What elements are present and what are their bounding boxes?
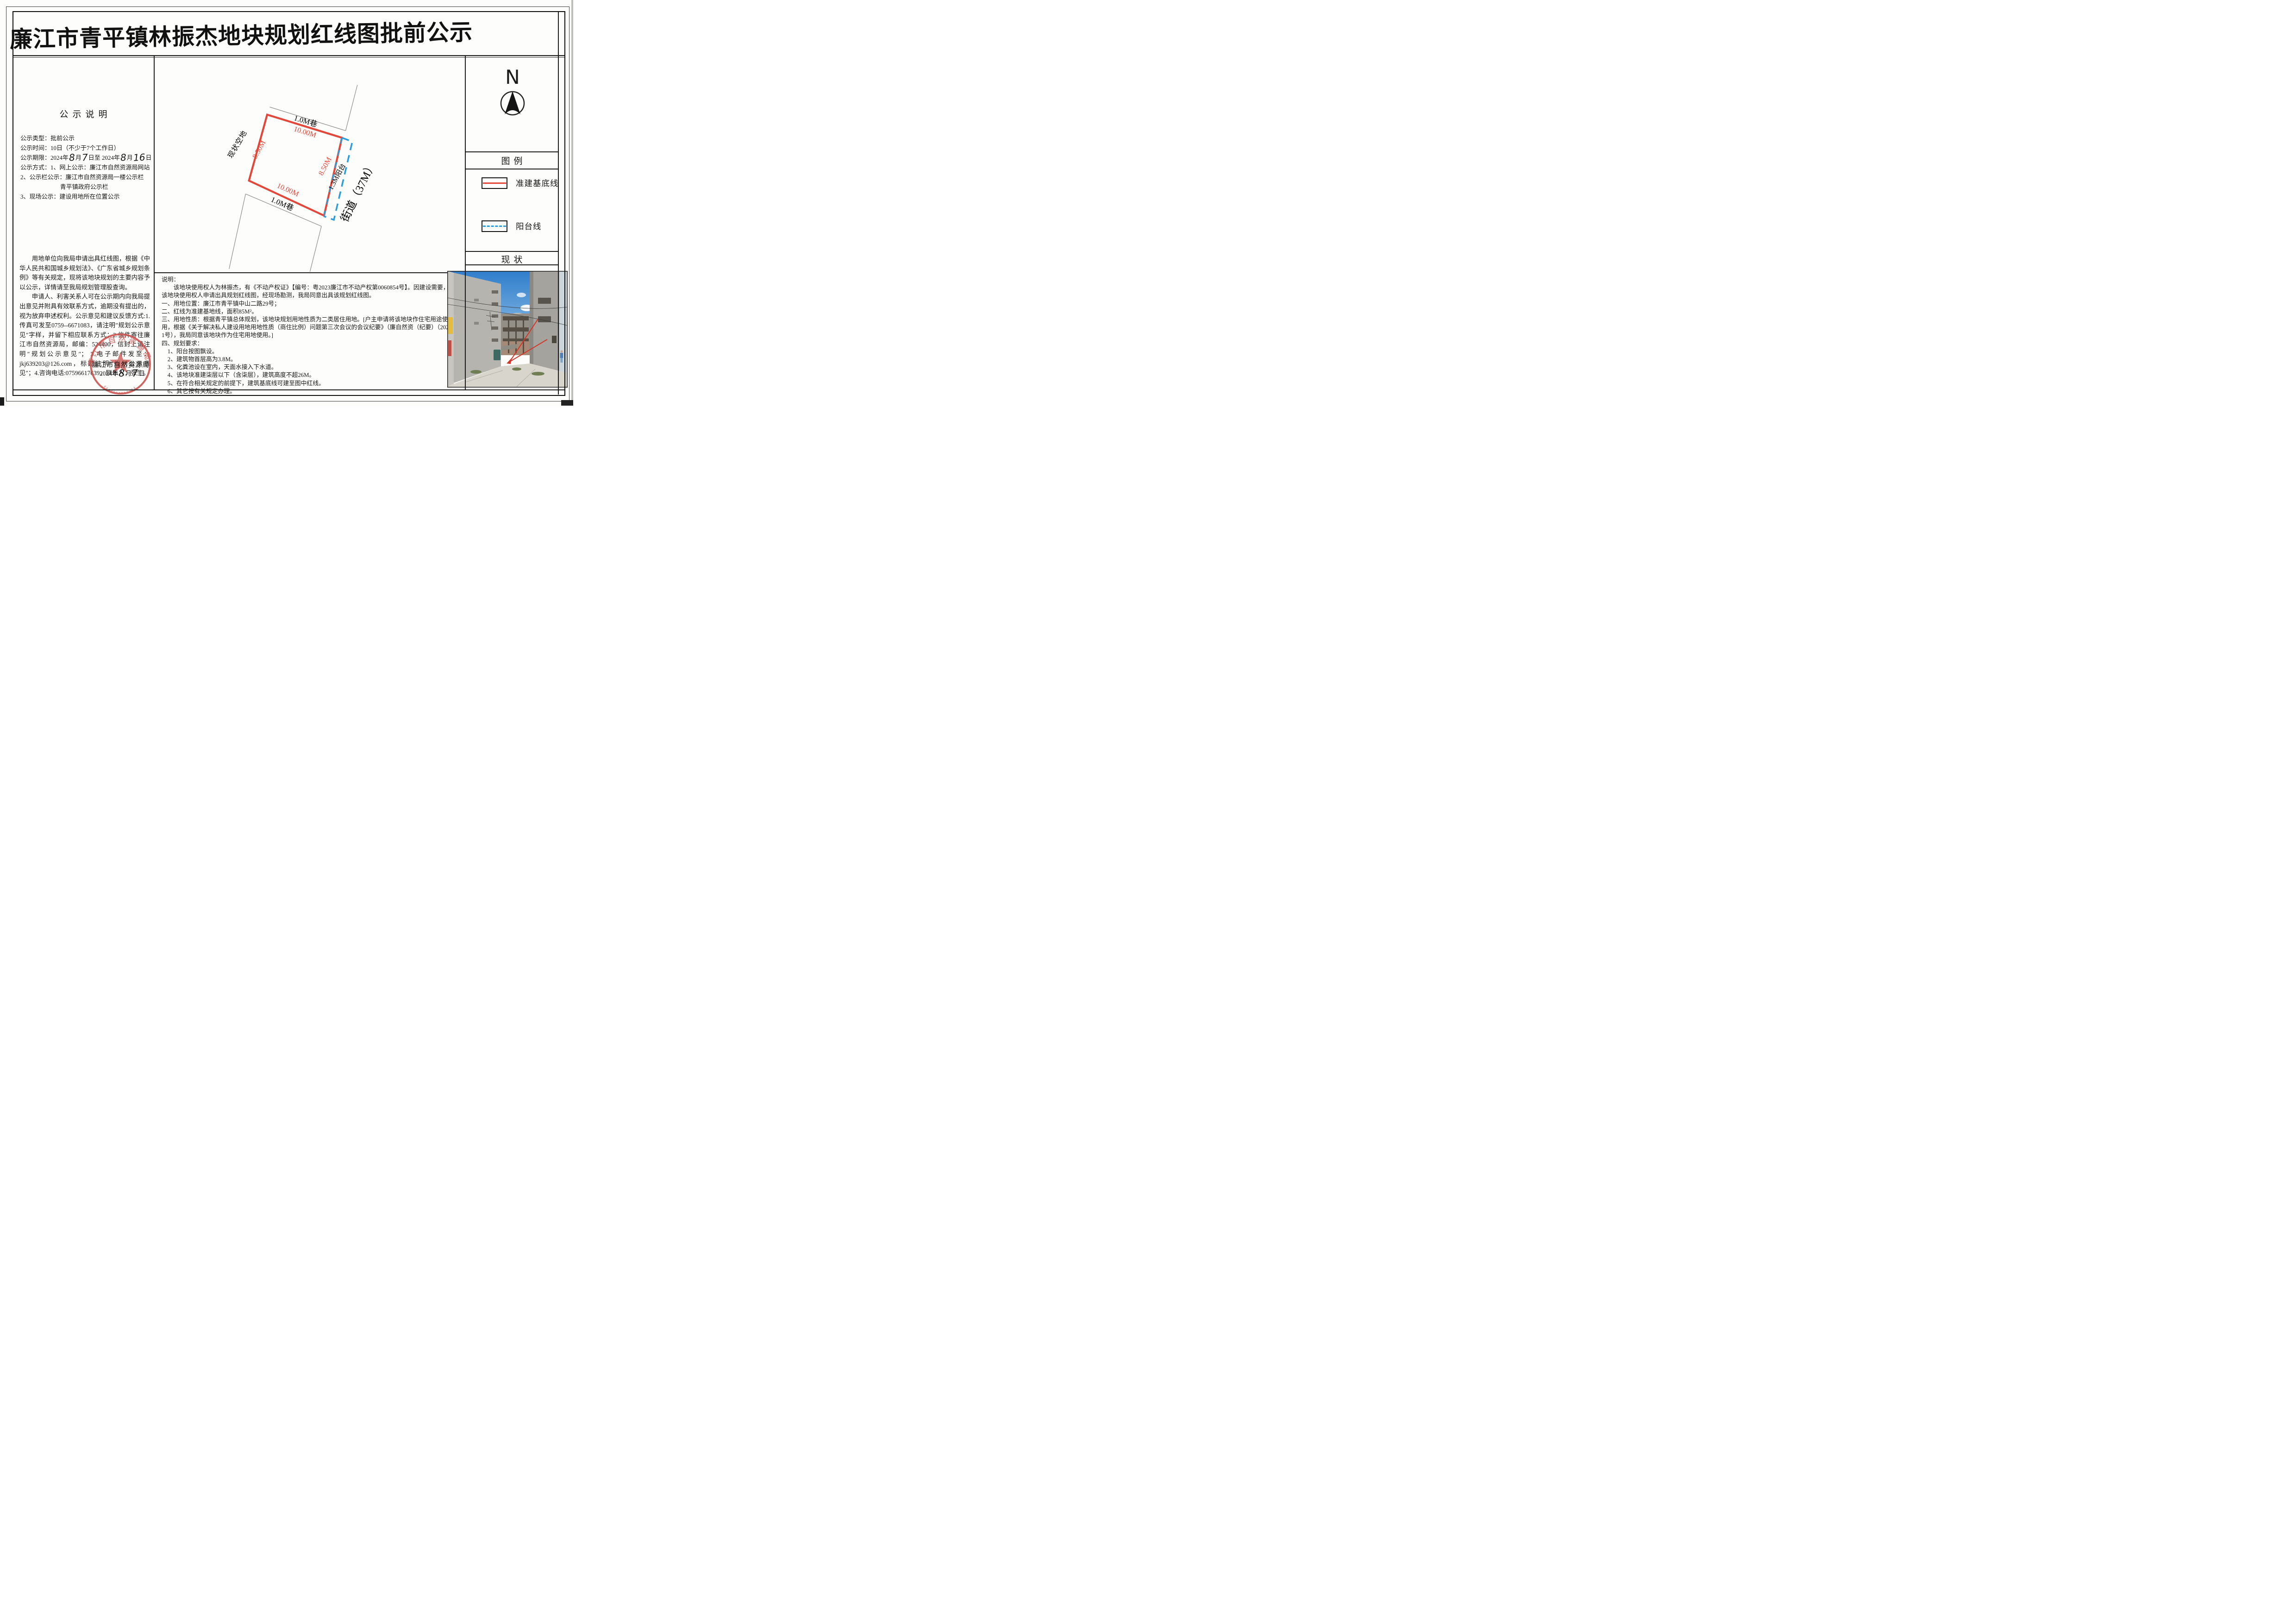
scan-corner-mark (0, 397, 4, 406)
outer-frame (6, 6, 569, 401)
scan-corner-mark (561, 400, 573, 406)
notice-sheet: 廉江市青平镇林振杰地块规划红线图批前公示 公示说明 公示类型：批前公示 公示时间… (0, 0, 574, 406)
scan-edge-shadow (571, 0, 573, 406)
